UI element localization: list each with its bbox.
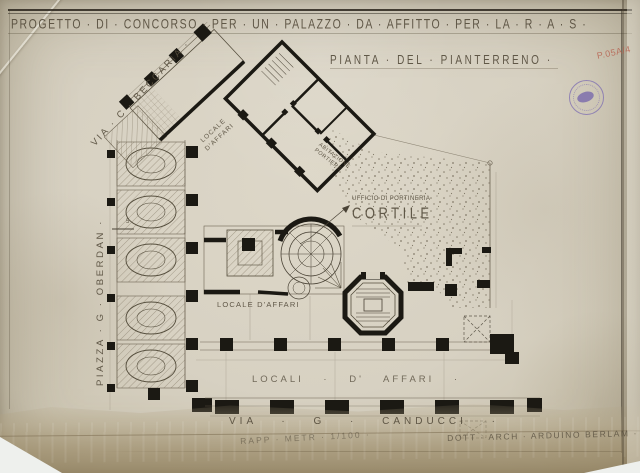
left-wing-bays bbox=[107, 140, 212, 412]
room-label-portineria: UFFICIO DI PORTINERIA bbox=[352, 196, 430, 202]
room-label-shop: LOCALE D'AFFARI bbox=[217, 300, 300, 309]
room-label-cortile: CORTILE bbox=[352, 204, 433, 222]
drawing-subtitle: PIANTA · DEL · PIANTERRENO · bbox=[330, 54, 553, 68]
dimension-mark: 5 bbox=[126, 219, 129, 225]
scanned-drawing-sheet: PROGETTO · DI · CONCORSO · PER · UN · PA… bbox=[0, 0, 640, 473]
street-label-oberdan: PIAZZA · G · OBERDAN · bbox=[95, 219, 106, 386]
archive-stamp-icon bbox=[569, 80, 604, 115]
stair-tower bbox=[345, 272, 401, 333]
drawing-title: PROGETTO · DI · CONCORSO · PER · UN · PA… bbox=[11, 17, 633, 33]
paper-fold-right bbox=[622, 0, 640, 473]
street-label-canducci: VIA · G · CANDUCCI · bbox=[229, 416, 499, 427]
room-label-shops-row: LOCALI · D' AFFARI · bbox=[252, 374, 460, 385]
central-hall bbox=[204, 219, 344, 340]
